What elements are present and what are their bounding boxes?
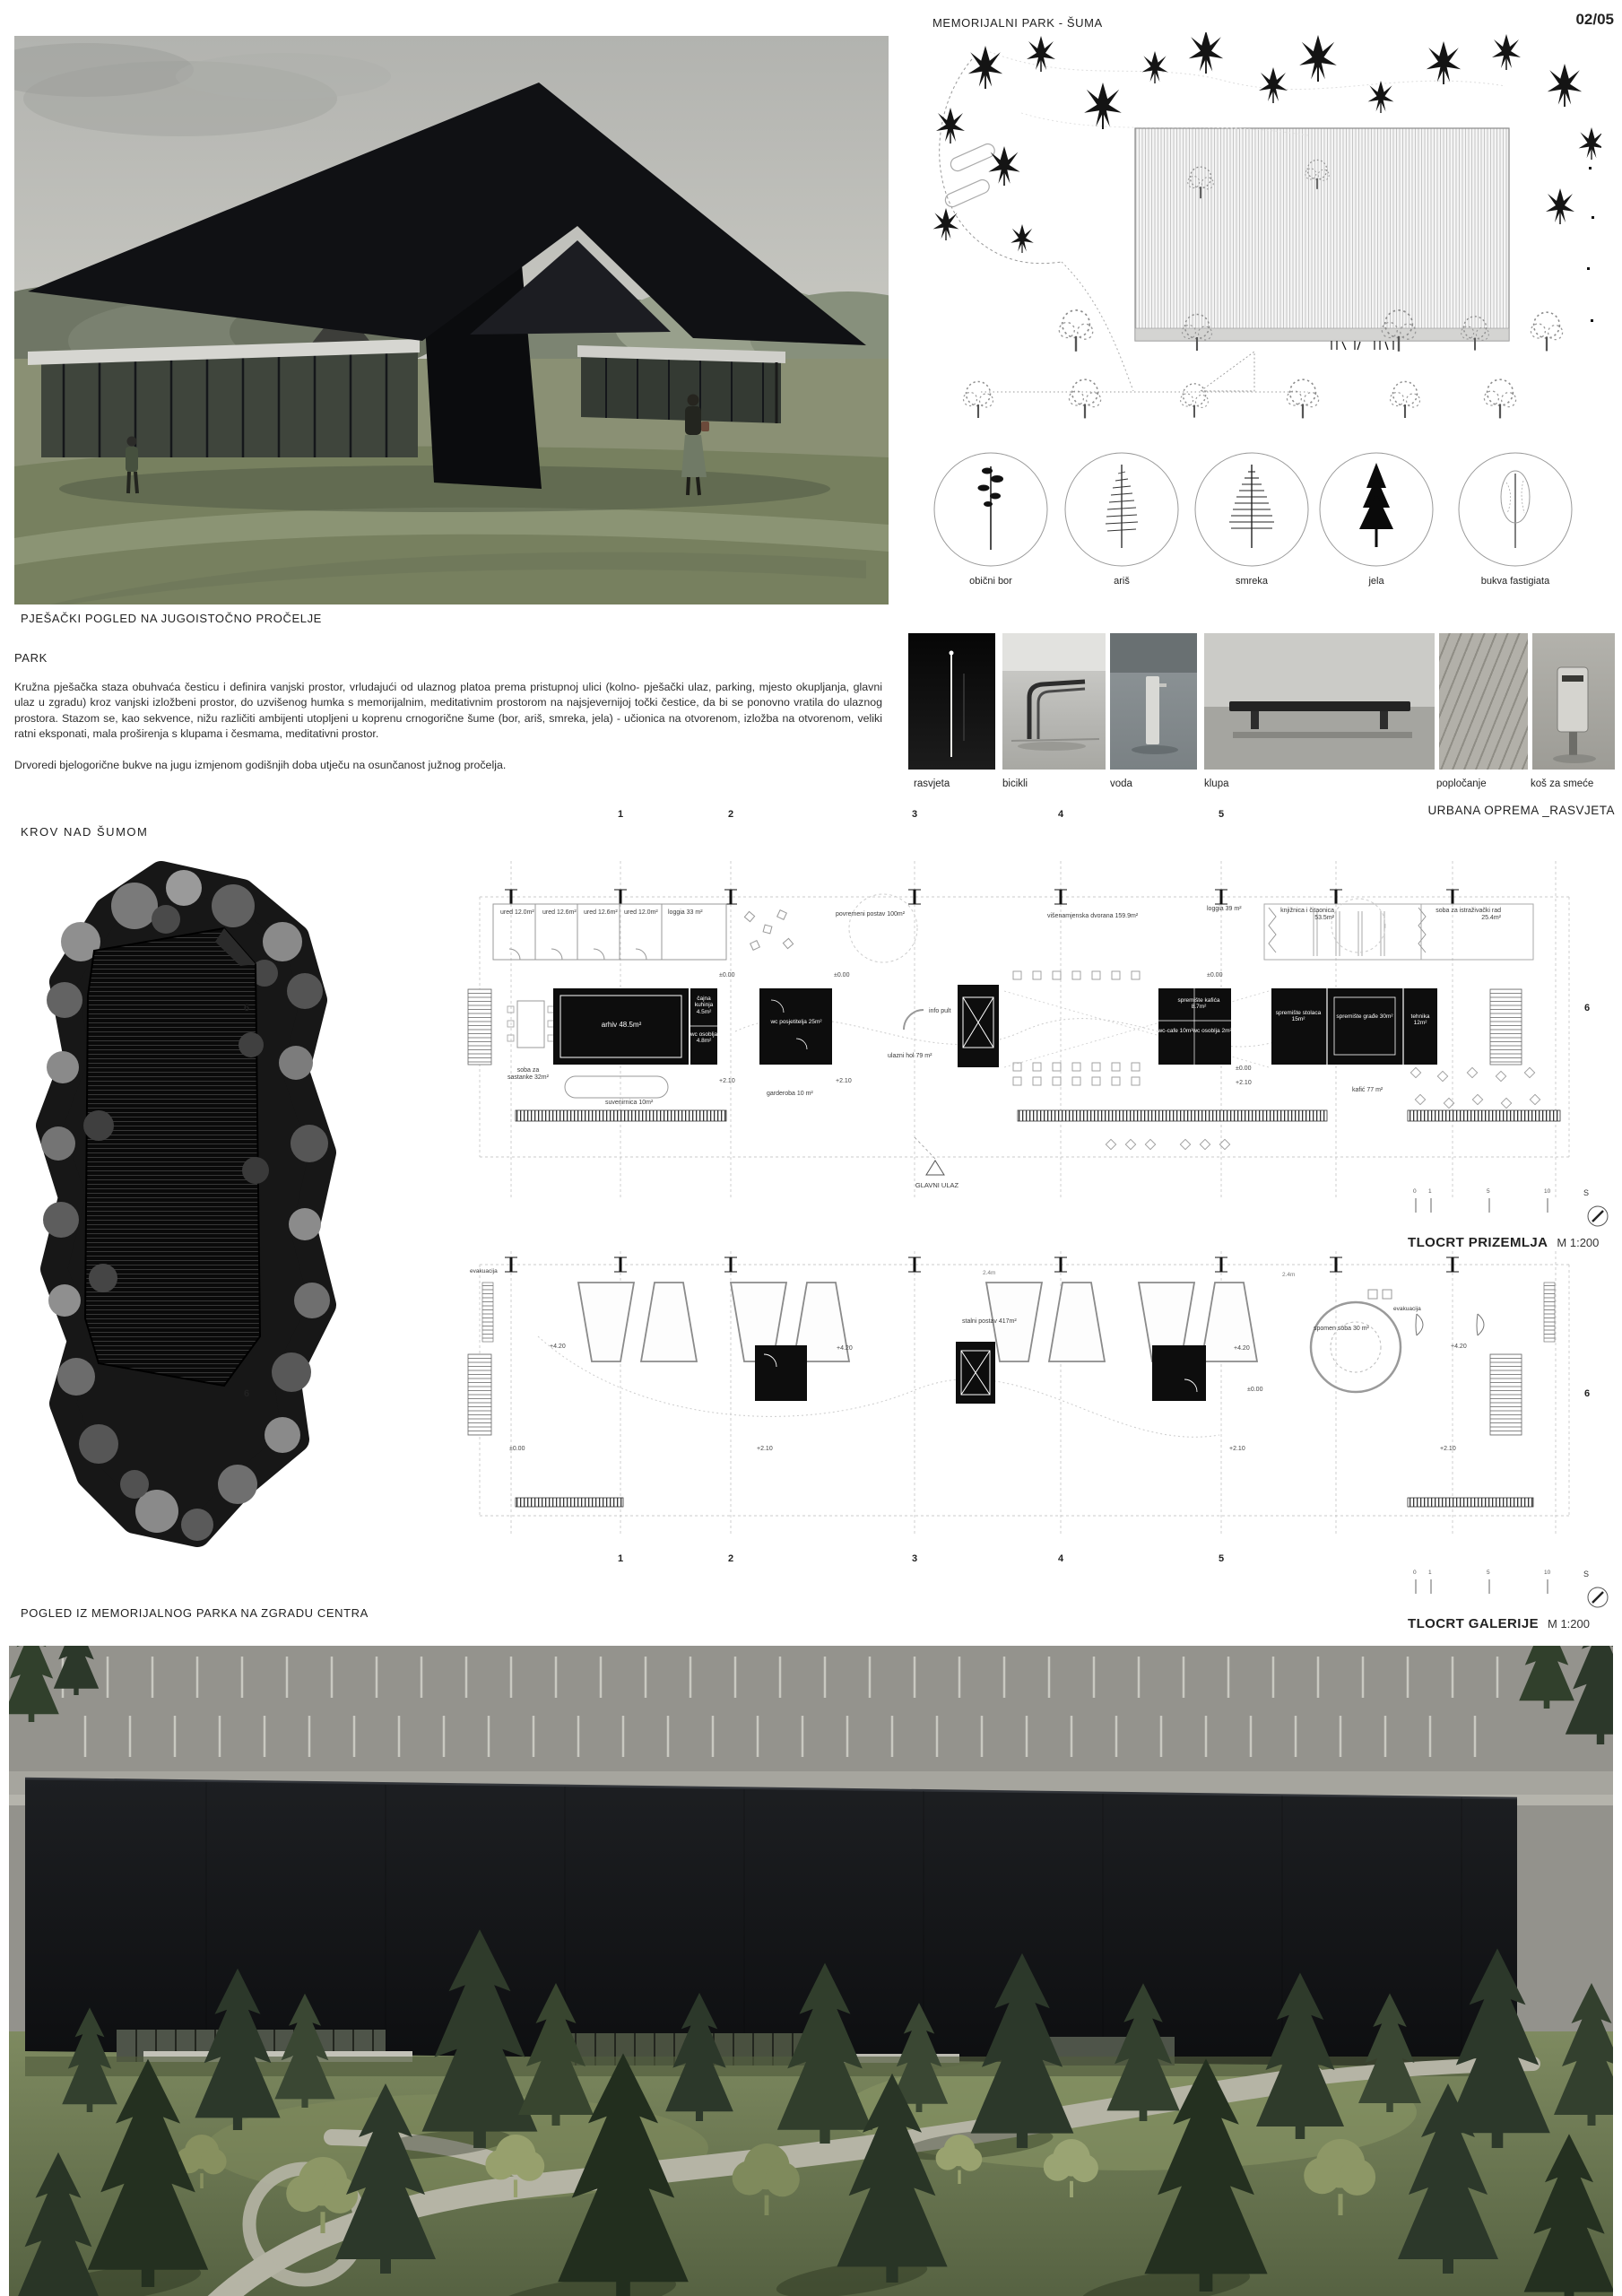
caption-roof-plan: KROV NAD ŠUMOM: [21, 825, 148, 839]
level-mark: ±0.00: [834, 972, 849, 978]
tree-glyph-aris: [1106, 465, 1138, 548]
grid-number: 3: [906, 1553, 924, 1564]
level-mark: +2.10: [1236, 1080, 1252, 1086]
room-label: spremište stolaca 15m²: [1273, 1010, 1323, 1023]
room-label: ured 12.0m²: [500, 909, 534, 917]
room-label: arhiv 48.5m²: [567, 1021, 676, 1029]
caption-top-render: PJEŠAČKI POGLED NA JUGOISTOČNO PROČELJE: [21, 612, 322, 625]
tree-glyph-smreka: [1229, 465, 1274, 548]
room-label: soba za istraživački rad 25.4m²: [1427, 908, 1501, 923]
level-mark: ±0.00: [719, 972, 734, 978]
render-southeast-facade: [14, 36, 889, 604]
roof-over-forest-image: [27, 857, 350, 1547]
level-mark: +2.10: [757, 1446, 773, 1452]
equipment-photo-voda: [1110, 633, 1197, 770]
equipment-photo-klupa: [1204, 633, 1435, 770]
render-southeast-facade-drawing: [14, 36, 889, 604]
level-mark: ±0.00: [509, 1446, 525, 1452]
tree-glyph-bor: [978, 466, 1004, 550]
level-mark: +2.10: [836, 1078, 852, 1084]
equipment-label-klupa: klupa: [1204, 778, 1229, 789]
room-label: čajna kuhinja 4.5m²: [689, 996, 719, 1015]
site-plan-building: [1135, 128, 1509, 341]
level-mark: ±0.00: [1247, 1387, 1262, 1393]
tree-label-bukva: bukva fastigiata: [1457, 576, 1574, 587]
equipment-label-voda: voda: [1110, 778, 1132, 789]
grid-number-side: 6: [238, 1003, 256, 1013]
grid-number: 5: [1212, 1553, 1230, 1564]
render-memorial-park-view: [9, 1646, 1613, 2296]
site-plan-title: MEMORIJALNI PARK - ŠUMA: [932, 16, 1103, 30]
room-label: loggia 39 m²: [1207, 906, 1242, 913]
room-label: wc osoblja 2m²: [1193, 1028, 1232, 1034]
room-label: wc-cafe 10m²: [1157, 1028, 1194, 1034]
level-mark: +2.10: [719, 1078, 735, 1084]
grid-number-side: 6: [1578, 1003, 1596, 1013]
park-heading: PARK: [14, 651, 48, 665]
level-mark: +4.20: [550, 1344, 566, 1350]
grid-number: 4: [1052, 1553, 1070, 1564]
level-mark: ±0.00: [1207, 972, 1222, 978]
room-label: wc posjetitelja 25m²: [762, 1019, 830, 1025]
scalebar-tick: 1: [1428, 1188, 1432, 1195]
tree-label-jela: jela: [1318, 576, 1435, 587]
park-paragraph-1: Kružna pješačka staza obuhvaća česticu i…: [14, 680, 882, 743]
memorial-park-site-plan: [932, 32, 1601, 439]
compass-north-label: S: [1583, 1188, 1589, 1197]
level-mark: +4.20: [1451, 1344, 1467, 1350]
compass-north-label: S: [1583, 1570, 1589, 1578]
equipment-photo-rasvjeta: [908, 633, 995, 770]
room-label: garderoba 10 m²: [767, 1091, 813, 1098]
level-mark: +2.10: [1440, 1446, 1456, 1452]
room-label: ured 12.6m²: [584, 909, 618, 917]
level-mark: +4.20: [1234, 1345, 1250, 1352]
gallery-plan-scale: M 1:200: [1548, 1617, 1590, 1631]
room-label: knjižnica i čitaonica 53.5m²: [1262, 908, 1334, 923]
tree-glyph-jela: [1359, 463, 1393, 547]
clearance-label: 2.4m: [1282, 1272, 1295, 1279]
ground-floor-plan: 1 2 3 4 5: [430, 807, 1605, 1220]
room-label: ured 12.0m²: [624, 909, 658, 917]
grid-number: 2: [722, 1553, 740, 1564]
room-label: wc osoblja 4.8m²: [689, 1031, 719, 1045]
presentation-board: MEMORIJALNI PARK - ŠUMA 02/05: [0, 0, 1622, 2296]
gallery-plan-caption-block: 0 1 5 10 S TLOCRT GALERIJEM 1:200: [1408, 1570, 1622, 1641]
room-label: stalni postav 417m²: [962, 1318, 1017, 1326]
room-label: evakuacija: [1393, 1306, 1421, 1313]
equipment-photo-kos: [1532, 633, 1615, 770]
tree-label-bor: obični bor: [932, 576, 1049, 587]
equipment-photo-poplocanje: [1439, 633, 1528, 770]
level-mark: +2.10: [1229, 1446, 1245, 1452]
main-entrance-label: GLAVNI ULAZ: [906, 1182, 968, 1190]
scalebar-tick: 5: [1487, 1570, 1490, 1576]
scalebar-tick: 5: [1487, 1188, 1490, 1195]
room-label: povremeni postav 100m²: [836, 911, 905, 918]
grid-number-side: 6: [1578, 1388, 1596, 1399]
park-paragraph-2: Drvoredi bjelogorične bukve na jugu izmj…: [14, 758, 882, 773]
room-label: spomen soba 30 m²: [1314, 1326, 1369, 1333]
clearance-label: 2.4m: [983, 1270, 995, 1277]
scalebar-tick: 1: [1428, 1570, 1432, 1576]
room-label: spremište kafića 8.7m²: [1171, 997, 1227, 1011]
room-label: soba za sastanke 32m²: [507, 1067, 549, 1083]
tree-label-aris: ariš: [1063, 576, 1180, 587]
level-mark: +4.20: [837, 1345, 853, 1352]
equipment-label-kos: koš za smeće: [1531, 778, 1593, 789]
gallery-plan-title: TLOCRT GALERIJE: [1408, 1616, 1539, 1631]
equipment-label-bicikli: bicikli: [1002, 778, 1028, 789]
room-label: info pult: [929, 1008, 951, 1015]
room-label: kafić 77 m²: [1352, 1087, 1383, 1094]
page-number: 02/05: [1524, 11, 1614, 29]
grid-number-side: 6: [238, 1388, 256, 1399]
tree-label-smreka: smreka: [1193, 576, 1310, 587]
room-label: višenamjenska dvorana 159.9m²: [1047, 913, 1138, 920]
scalebar-tick: 0: [1413, 1570, 1417, 1576]
equipment-photo-bicikli: [1002, 633, 1106, 770]
level-mark: ±0.00: [1236, 1065, 1251, 1072]
caption-bottom-render: POGLED IZ MEMORIJALNOG PARKA NA ZGRADU C…: [21, 1606, 369, 1620]
room-label: ulazni hol 79 m²: [888, 1053, 932, 1060]
room-label: spremište građe 30m²: [1329, 1013, 1401, 1020]
gallery-floor-plan: evakuacija evakuacija 2.4m 2.4m stalni p…: [430, 1229, 1605, 1587]
scalebar-tick: 0: [1413, 1188, 1417, 1195]
equipment-label-poplocanje: popločanje: [1436, 778, 1487, 789]
tree-glyph-bukva: [1501, 471, 1530, 548]
equipment-label-rasvjeta: rasvjeta: [914, 778, 950, 789]
room-label: suvenirnica 10m²: [605, 1100, 653, 1107]
room-label: ured 12.6m²: [542, 909, 577, 917]
tree-species-legend: obični bor ariš smreka jela bukva fastig…: [932, 447, 1601, 581]
room-label: evakuacija: [470, 1268, 498, 1275]
room-label: tehnika 12m²: [1404, 1013, 1436, 1027]
scalebar-tick: 10: [1544, 1188, 1550, 1195]
room-label: loggia 33 m²: [668, 909, 703, 917]
scalebar-tick: 10: [1544, 1570, 1550, 1576]
grid-number: 1: [612, 1553, 629, 1564]
